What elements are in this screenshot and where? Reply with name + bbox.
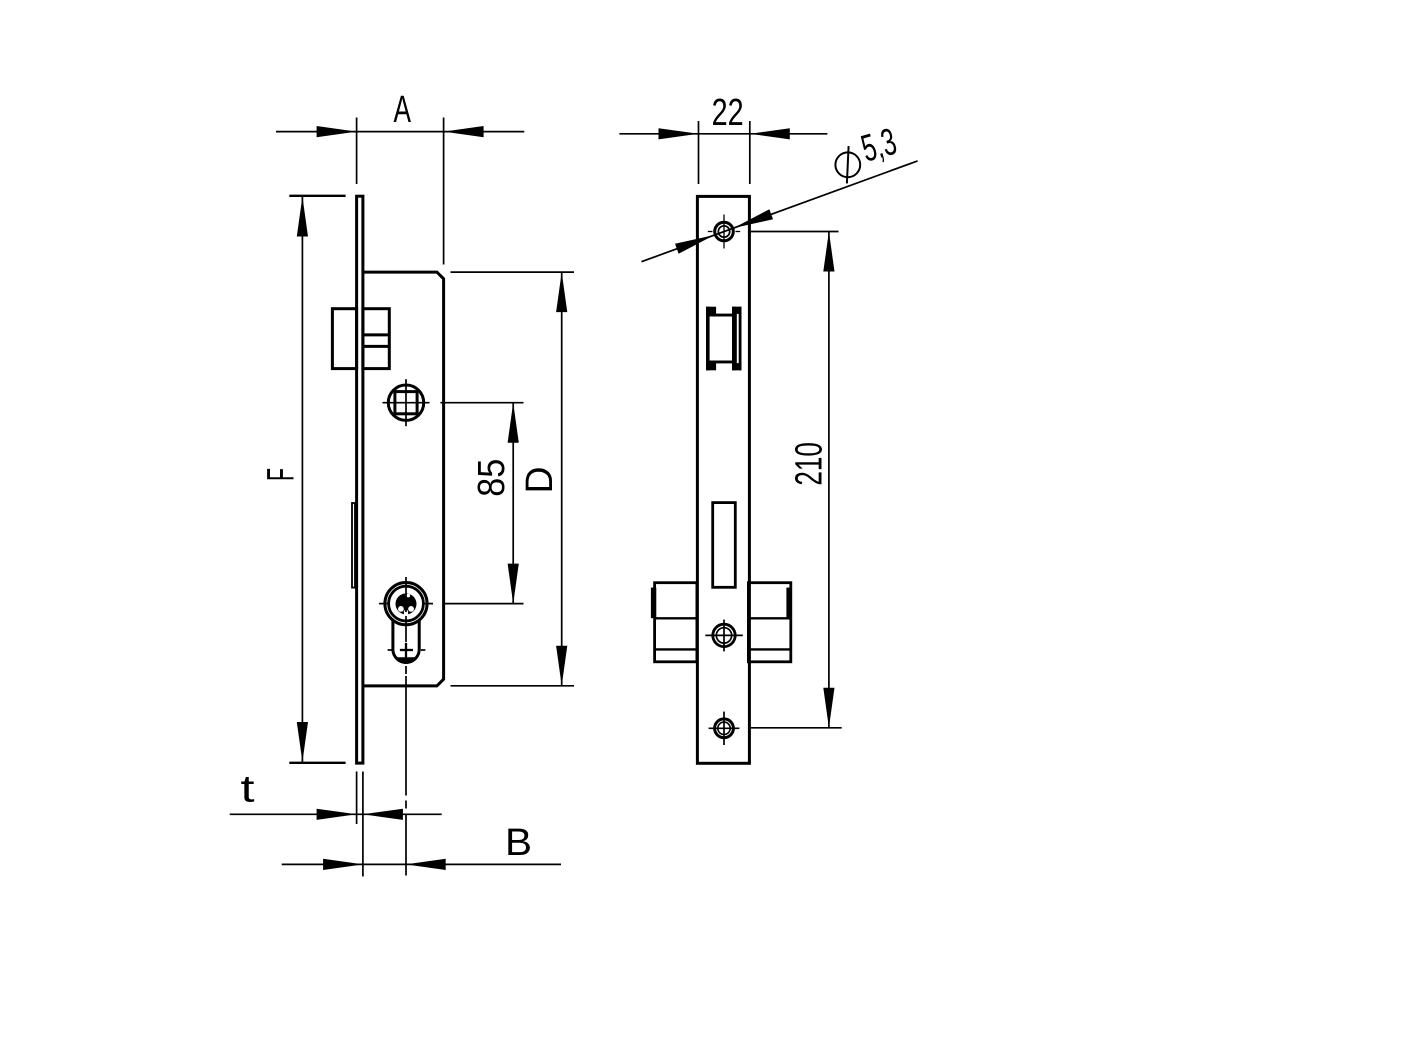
svg-text:D: D	[519, 467, 561, 494]
svg-text:210: 210	[789, 442, 831, 486]
svg-text:22: 22	[712, 92, 744, 134]
svg-text:A: A	[394, 89, 412, 131]
svg-text:85: 85	[471, 459, 513, 497]
svg-text:F: F	[261, 468, 303, 481]
svg-text:B: B	[505, 822, 532, 864]
svg-text:t: t	[241, 769, 256, 811]
